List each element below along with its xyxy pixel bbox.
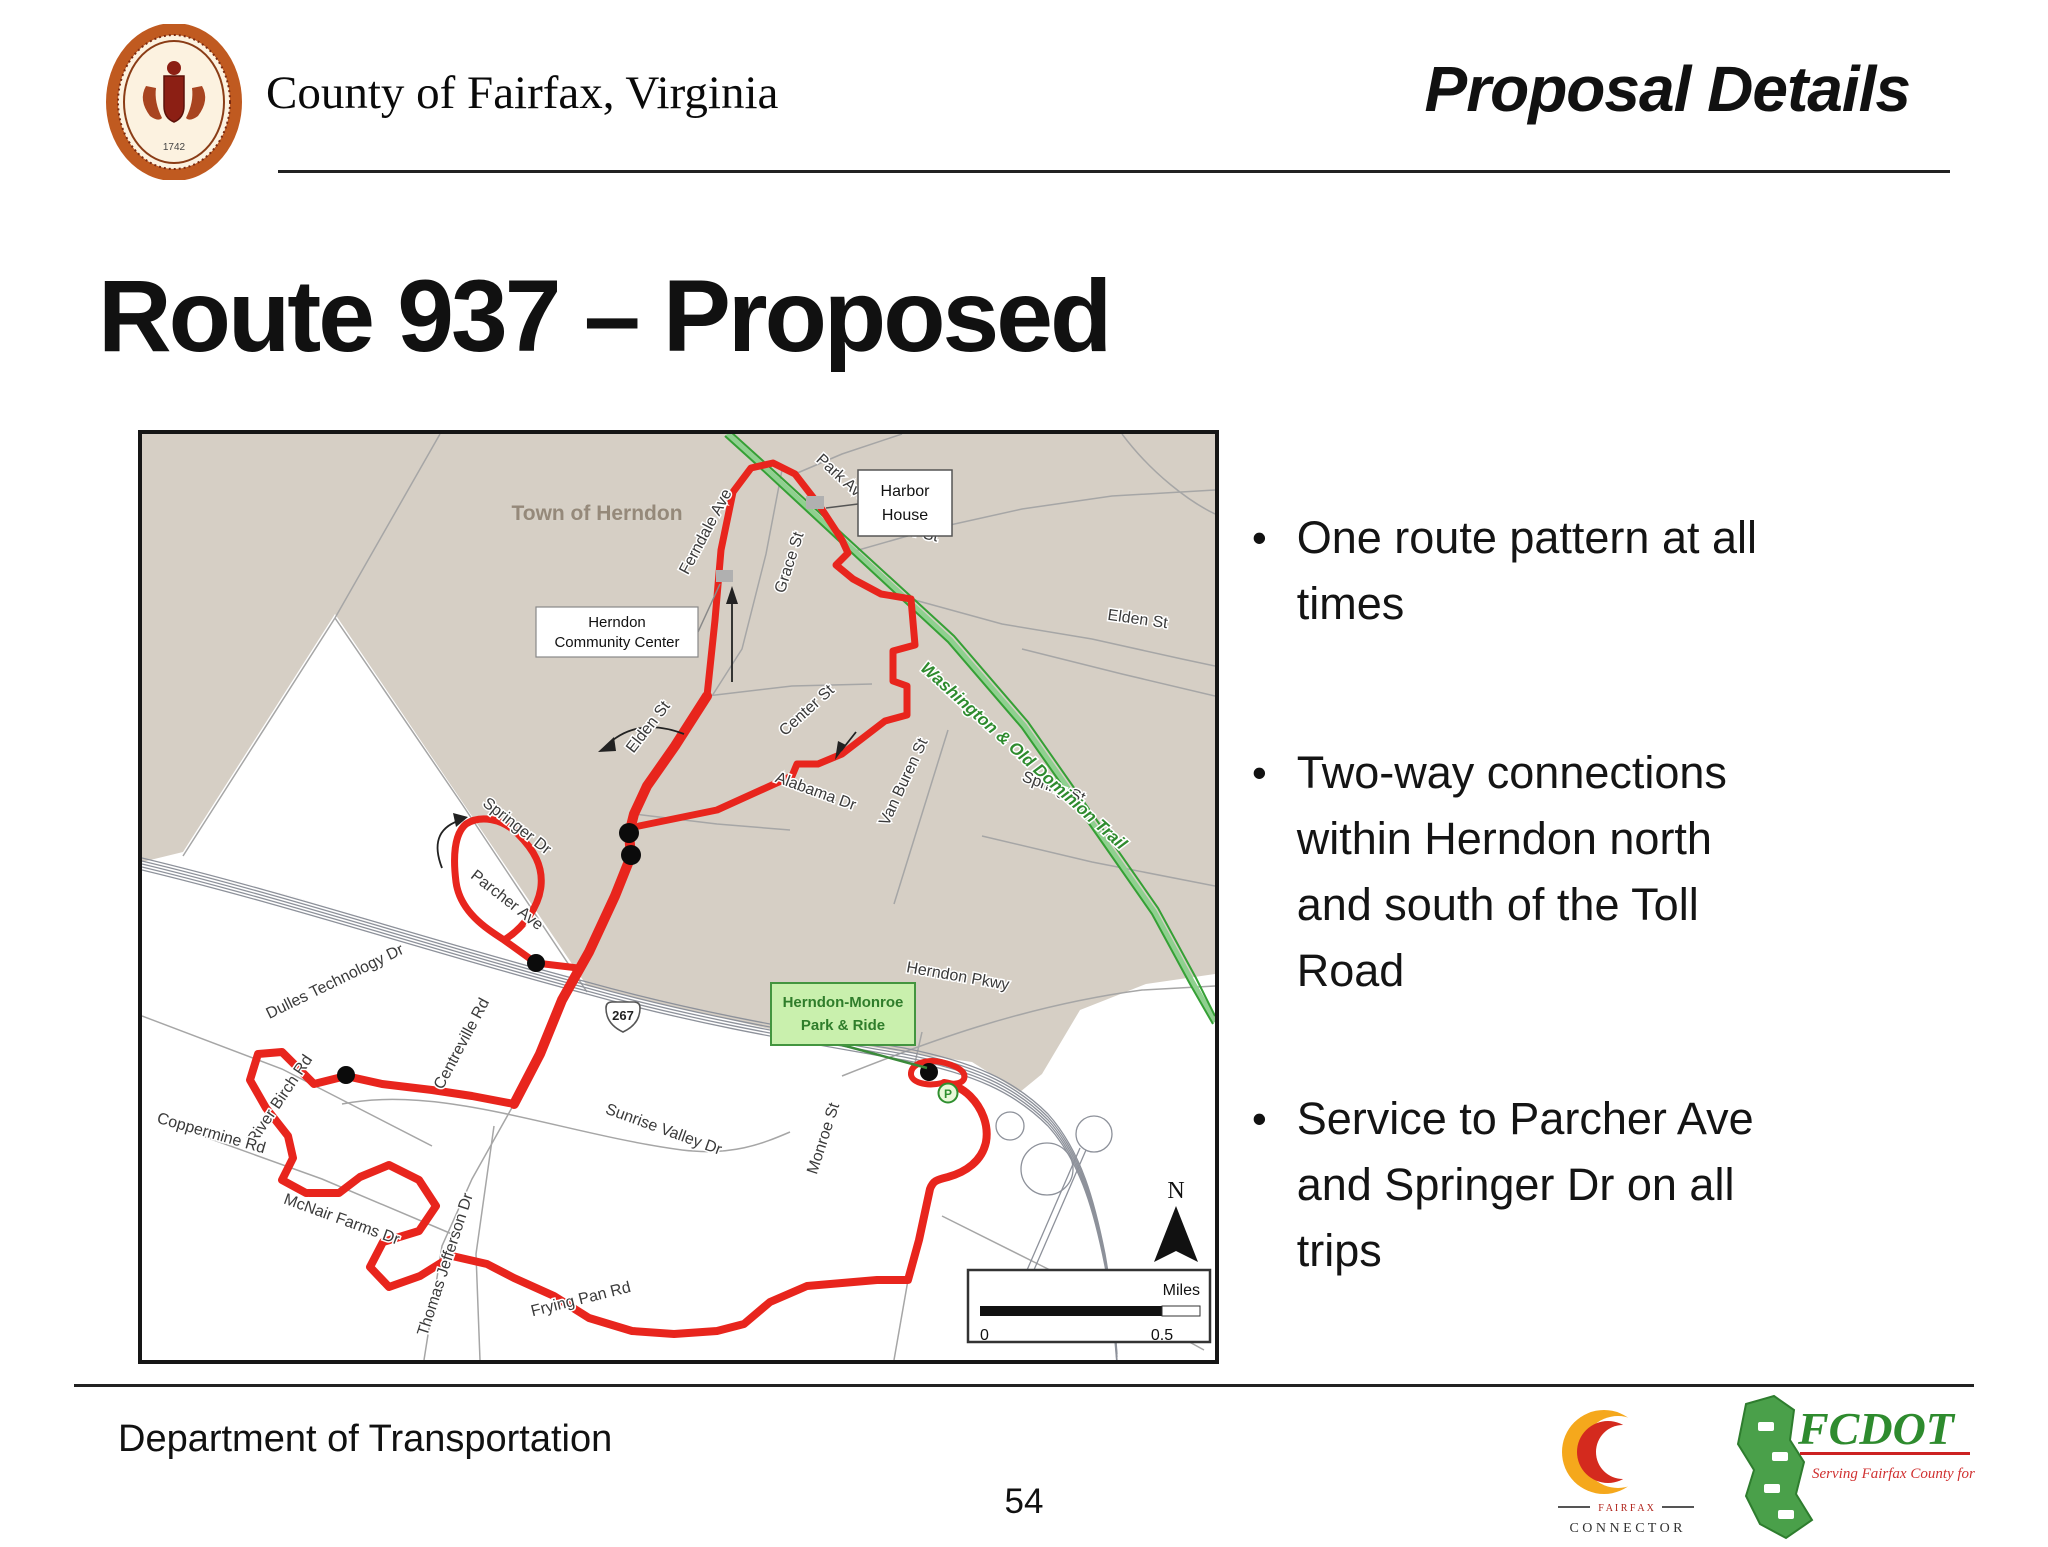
bullet-text-2: Two-way connections within Herndon north…	[1297, 740, 1727, 1004]
parking-marker: P	[939, 1084, 958, 1103]
bullet-text-1: One route pattern at all times	[1297, 505, 1757, 637]
svg-text:0: 0	[980, 1327, 989, 1344]
bullet-item-2: • Two-way connections within Herndon nor…	[1252, 740, 2012, 1004]
slide-title: Route 937 – Proposed	[98, 258, 1109, 375]
svg-text:0.5: 0.5	[1151, 1327, 1173, 1344]
svg-text:Park & Ride: Park & Ride	[801, 1017, 885, 1034]
agency-name: County of Fairfax, Virginia	[266, 66, 778, 120]
svg-text:House: House	[882, 507, 928, 524]
harbor-house-building	[806, 496, 824, 509]
fcdot-logo-icon: FCDOT Serving Fairfax County for 30 Year…	[1716, 1392, 1976, 1542]
connector-crescent-icon: F A I R F A X C O N N E C T O R	[1538, 1406, 1714, 1542]
page-title: Proposal Details	[1100, 52, 1910, 126]
route-map-image: Town of Herndon Park Ave Ferndale Ave Gr…	[142, 434, 1215, 1360]
header-divider	[278, 170, 1950, 173]
bullet-item-3: • Service to Parcher Ave and Springer Dr…	[1252, 1086, 2012, 1284]
county-seal-icon: 1742	[106, 24, 242, 180]
svg-text:P: P	[944, 1087, 952, 1101]
svg-text:Community Center: Community Center	[554, 634, 679, 651]
fcdot-logo: FCDOT Serving Fairfax County for 30 Year…	[1716, 1392, 1976, 1547]
footer-divider	[74, 1384, 1974, 1387]
svg-text:1742: 1742	[163, 142, 186, 153]
bullet-item-1: • One route pattern at all times	[1252, 505, 2012, 637]
svg-text:F A I R F A X: F A I R F A X	[1598, 1503, 1654, 1514]
svg-text:C O N N E C T O R: C O N N E C T O R	[1569, 1521, 1683, 1536]
footer-department: Department of Transportation	[118, 1418, 612, 1461]
svg-text:FCDOT: FCDOT	[1797, 1403, 1956, 1454]
community-center-building	[716, 570, 733, 582]
svg-text:Herndon: Herndon	[588, 614, 646, 631]
bullet-marker: •	[1252, 1086, 1267, 1284]
label-town-of-herndon: Town of Herndon	[511, 502, 682, 525]
bullet-marker: •	[1252, 740, 1267, 1004]
svg-text:267: 267	[612, 1008, 634, 1023]
route-map: Town of Herndon Park Ave Ferndale Ave Gr…	[138, 430, 1219, 1364]
county-seal: 1742	[106, 24, 242, 185]
scale-bar: Miles 0 0.5	[968, 1270, 1210, 1344]
svg-text:Miles: Miles	[1163, 1282, 1200, 1299]
bullet-text-3: Service to Parcher Ave and Springer Dr o…	[1297, 1086, 1754, 1284]
fcdot-tagline: Serving Fairfax County for 30 Years and …	[1812, 1466, 1976, 1482]
svg-text:Herndon-Monroe: Herndon-Monroe	[783, 994, 904, 1011]
bullet-marker: •	[1252, 505, 1267, 637]
fairfax-connector-logo: F A I R F A X C O N N E C T O R	[1538, 1406, 1714, 1547]
svg-text:N: N	[1167, 1178, 1184, 1204]
svg-text:Harbor: Harbor	[881, 483, 931, 500]
